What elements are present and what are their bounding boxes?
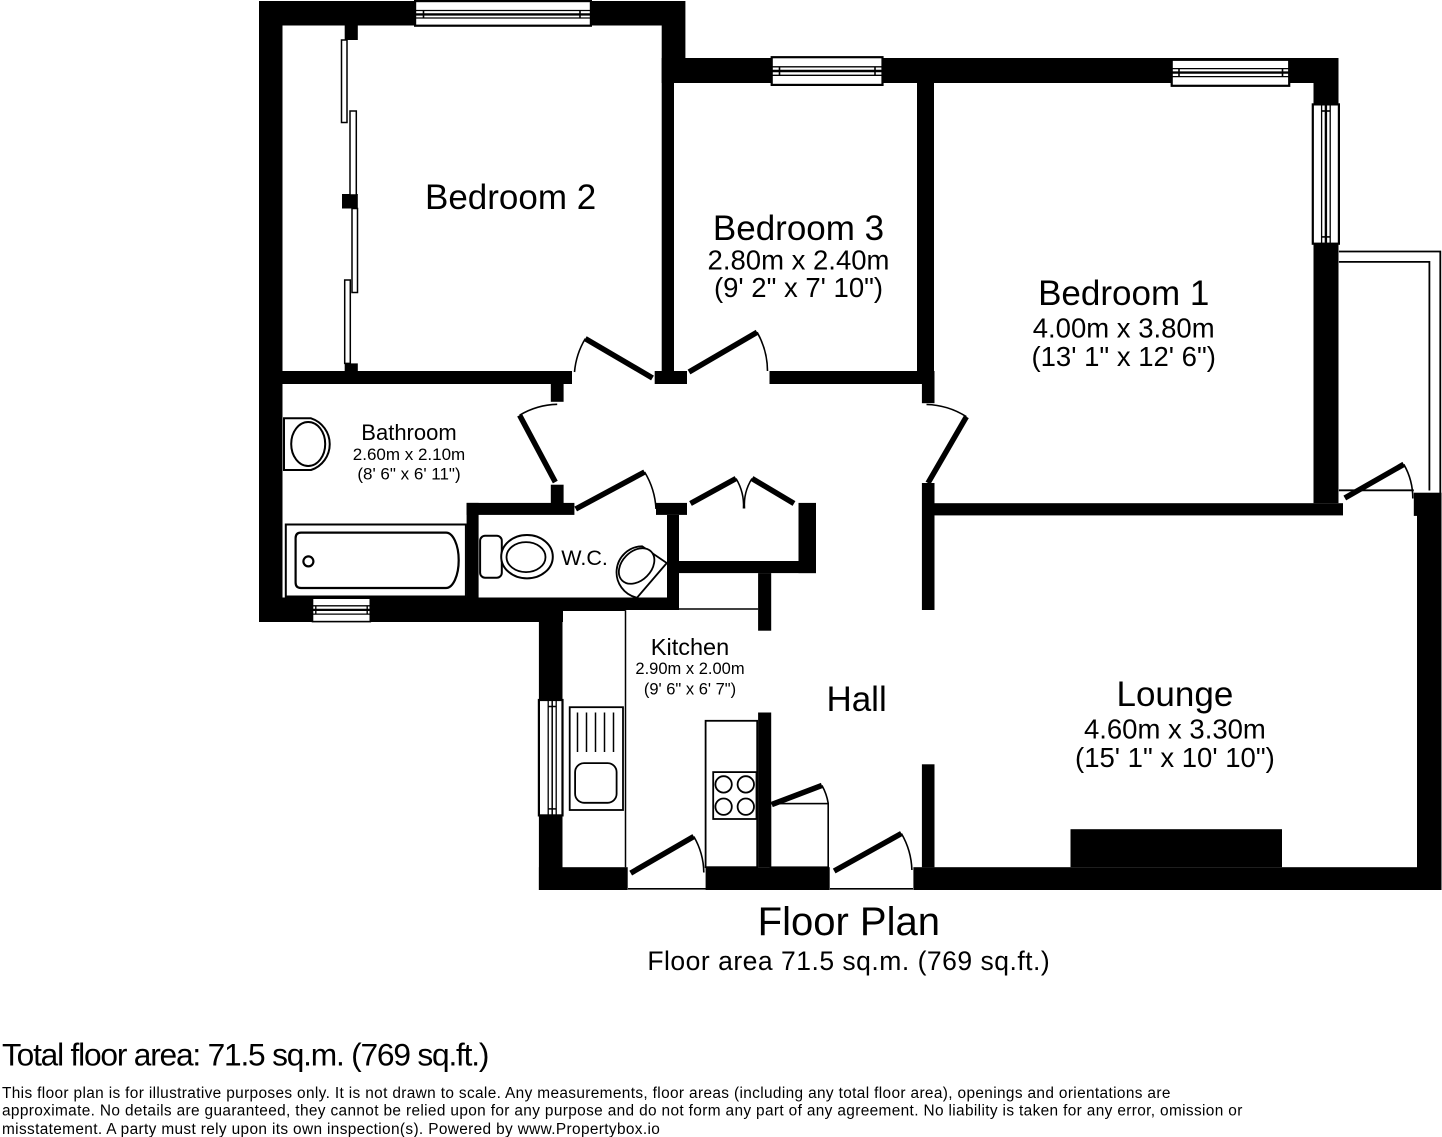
svg-text:W.C.: W.C.: [561, 546, 608, 570]
svg-text:2.80m x 2.40m: 2.80m x 2.40m: [708, 245, 890, 276]
svg-text:Bathroom: Bathroom: [361, 420, 456, 445]
svg-text:(15' 1" x 10' 10"): (15' 1" x 10' 10"): [1075, 742, 1275, 773]
svg-text:(9' 6" x 6' 7"): (9' 6" x 6' 7"): [644, 681, 736, 699]
svg-text:misstatement. A party must rel: misstatement. A party must rely upon its…: [2, 1121, 660, 1137]
svg-text:4.00m x 3.80m: 4.00m x 3.80m: [1033, 313, 1215, 344]
svg-text:4.60m x 3.30m: 4.60m x 3.30m: [1084, 714, 1266, 745]
svg-text:Total floor area: 71.5 sq.m. (: Total floor area: 71.5 sq.m. (769 sq.ft.…: [2, 1037, 488, 1073]
svg-text:Bedroom 1: Bedroom 1: [1038, 274, 1209, 313]
svg-text:Lounge: Lounge: [1117, 675, 1234, 714]
svg-text:2.90m x 2.00m: 2.90m x 2.00m: [635, 660, 744, 678]
svg-text:(8' 6" x 6' 11"): (8' 6" x 6' 11"): [357, 465, 460, 484]
svg-text:Hall: Hall: [826, 680, 886, 719]
svg-text:Floor area 71.5 sq.m. (769 sq.: Floor area 71.5 sq.m. (769 sq.ft.): [647, 946, 1050, 976]
svg-text:Bedroom 3: Bedroom 3: [713, 209, 884, 248]
svg-text:Floor Plan: Floor Plan: [758, 900, 940, 944]
svg-text:(9' 2" x 7' 10"): (9' 2" x 7' 10"): [714, 272, 883, 303]
svg-text:approximate. No details are gu: approximate. No details are guaranteed, …: [2, 1103, 1243, 1120]
svg-text:2.60m x 2.10m: 2.60m x 2.10m: [353, 445, 465, 464]
svg-text:Kitchen: Kitchen: [651, 634, 729, 660]
svg-text:(13' 1" x 12' 6"): (13' 1" x 12' 6"): [1031, 341, 1215, 372]
svg-text:Bedroom 2: Bedroom 2: [425, 178, 596, 217]
svg-text:This floor plan is for illustr: This floor plan is for illustrative purp…: [2, 1085, 1171, 1102]
